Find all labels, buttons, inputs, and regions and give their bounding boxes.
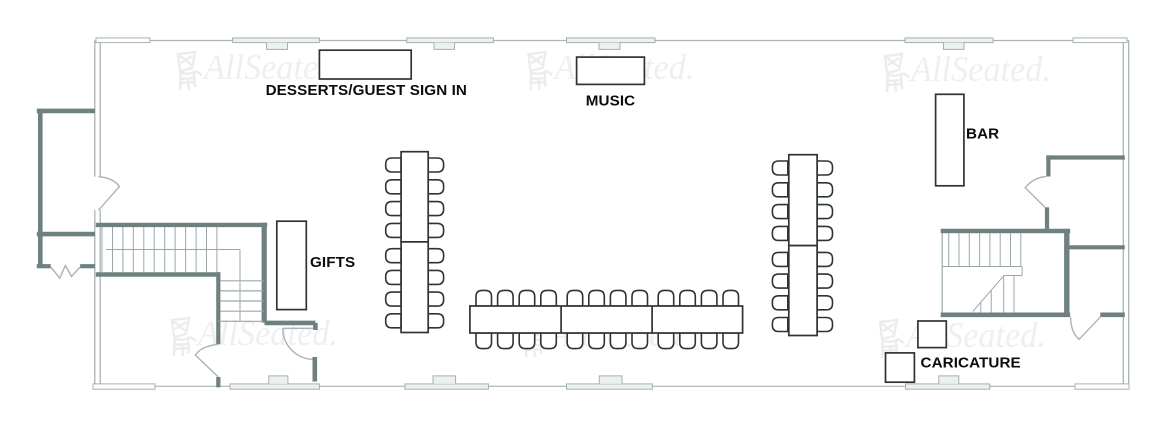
svg-text:DESSERTS/GUEST SIGN IN: DESSERTS/GUEST SIGN IN xyxy=(266,82,467,99)
svg-text:CARICATURE: CARICATURE xyxy=(921,354,1021,371)
svg-text:BAR: BAR xyxy=(966,126,999,143)
svg-text:MUSIC: MUSIC xyxy=(586,93,635,110)
svg-text:GIFTS: GIFTS xyxy=(310,254,355,271)
svg-text:AllSeated.: AllSeated. xyxy=(909,49,1051,89)
